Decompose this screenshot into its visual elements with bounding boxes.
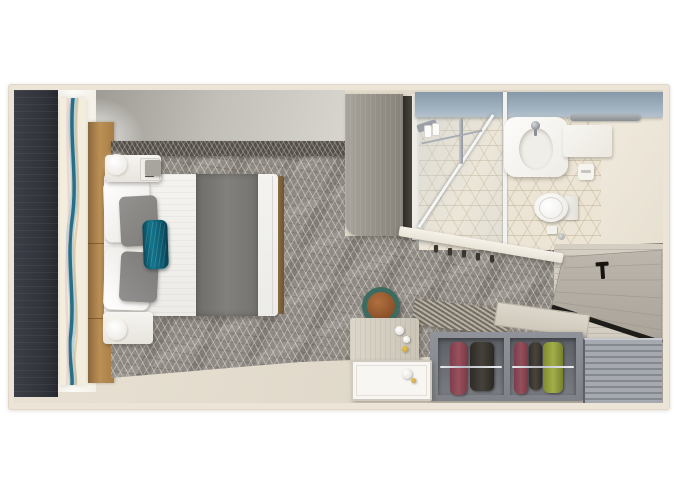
- coat-hook: [490, 255, 494, 262]
- bathroom-bin: [547, 226, 557, 234]
- carpet-wall-shadow-edge: [111, 141, 345, 156]
- wave-art-panel: [60, 98, 86, 385]
- cabin-outer-walls: [8, 84, 670, 410]
- louvered-cabinet: [583, 338, 662, 403]
- bathroom: [415, 92, 663, 250]
- floor-drain: [558, 233, 565, 240]
- shower-column: [459, 118, 463, 164]
- coat-hook: [448, 248, 452, 255]
- faucet: [531, 121, 540, 130]
- cabin-interior: [14, 90, 663, 403]
- bed-footboard: [278, 176, 284, 314]
- top-wall-band: [84, 90, 345, 142]
- coat-hook: [462, 250, 466, 257]
- pillow-accent-teal: [142, 220, 169, 270]
- toiletry-bottle: [432, 123, 440, 136]
- wardrobe-bay-2: [510, 338, 576, 395]
- coat-hook: [434, 245, 438, 252]
- wardrobe-bay-1: [438, 338, 504, 395]
- toiletry-bottle: [424, 125, 432, 138]
- tray-cup: [402, 369, 412, 379]
- stool-seat: [367, 292, 395, 320]
- desk-yellow-item: [402, 346, 408, 352]
- tray-item: [145, 176, 154, 177]
- garment-maroon: [514, 342, 528, 394]
- coat-hook: [476, 253, 480, 260]
- headboard-cushion-block: [145, 160, 161, 176]
- desk-cup: [395, 326, 404, 335]
- toilet-paper-holder: [578, 164, 594, 180]
- duvet-fold: [272, 176, 273, 314]
- bed-runner: [196, 174, 258, 316]
- wave-art-graphic: [60, 98, 86, 385]
- dark-wardrobe-wall-panel: [14, 90, 58, 397]
- bathroom-sliding-door-edge: [403, 96, 412, 236]
- sink-vanity: [504, 117, 568, 177]
- vanity-shelf: [563, 125, 612, 157]
- side-tray-table: [351, 360, 432, 401]
- table-lamp-top: [106, 154, 127, 175]
- toilet-seat: [539, 197, 563, 219]
- table-lamp-bottom: [106, 319, 127, 340]
- tray-yellow-item: [411, 378, 416, 383]
- desk-cup: [403, 336, 410, 343]
- stateroom-floorplan-render: [0, 0, 680, 491]
- towel-bar: [570, 114, 640, 121]
- bathroom-partition-wall: [345, 94, 403, 236]
- garment-maroon: [450, 342, 467, 395]
- wardrobe: [430, 332, 583, 401]
- hanging-rod: [440, 366, 502, 368]
- hanging-rod: [512, 366, 574, 368]
- toilet: [534, 193, 568, 222]
